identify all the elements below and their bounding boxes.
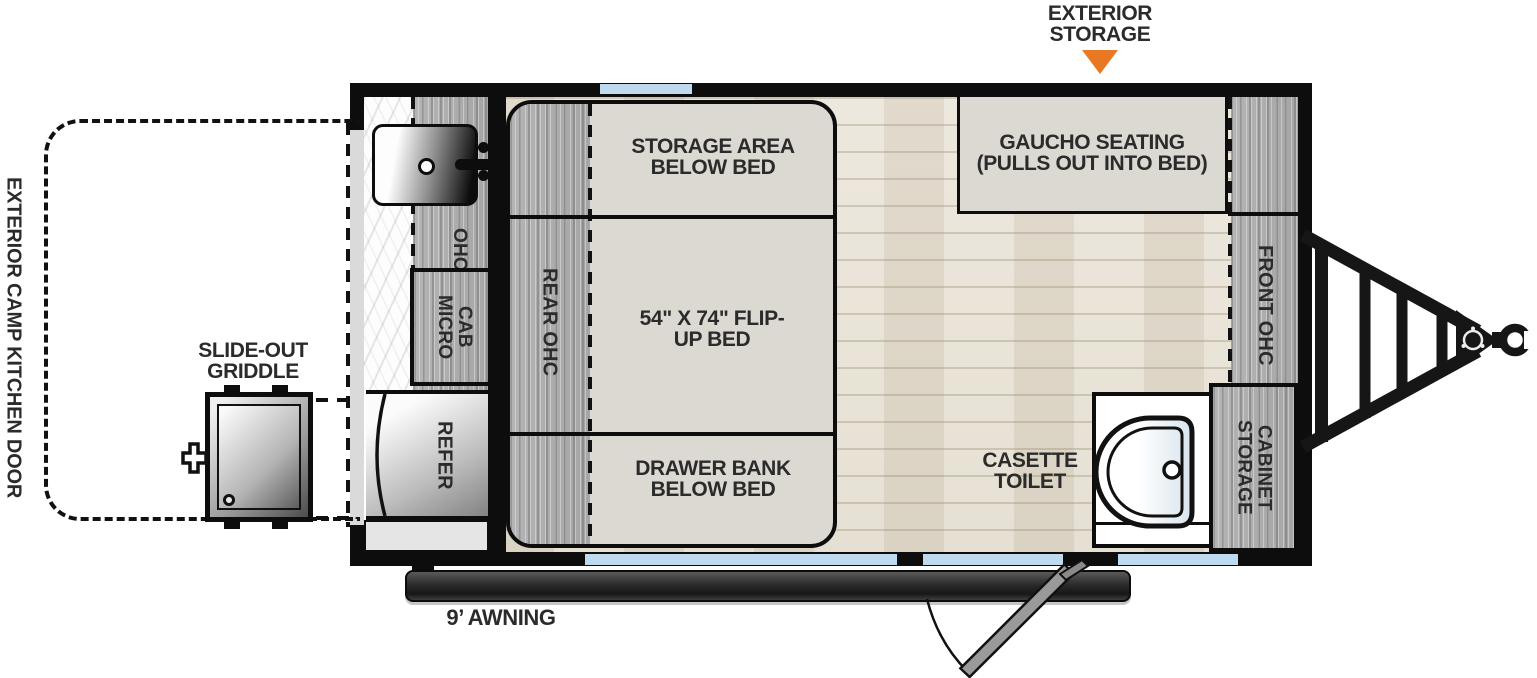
coupler-notch <box>1524 331 1537 349</box>
floor-plan: OHC MICRO CAB REFER REAR OHC STORAGE ARE… <box>0 0 1537 678</box>
refer-door-curve <box>377 394 385 516</box>
vector-overlay <box>0 0 1537 678</box>
toilet-flush-button <box>1164 462 1180 478</box>
tongue-jack-bolt <box>1471 327 1475 331</box>
entry-door-panel <box>960 564 1073 677</box>
hitch-tip-plate <box>1456 310 1498 370</box>
coupler-ball-socket <box>1503 328 1527 352</box>
hitch-rail-bottom <box>1303 351 1478 447</box>
entry-door-swing-arc <box>927 599 967 671</box>
tongue-jack-bolt <box>1481 344 1485 348</box>
hitch-crossbar-wall <box>1315 242 1328 442</box>
hitch-rail-top <box>1303 235 1478 331</box>
griddle-handle-icon <box>183 444 206 472</box>
tongue-jack-bolt <box>1462 344 1466 348</box>
